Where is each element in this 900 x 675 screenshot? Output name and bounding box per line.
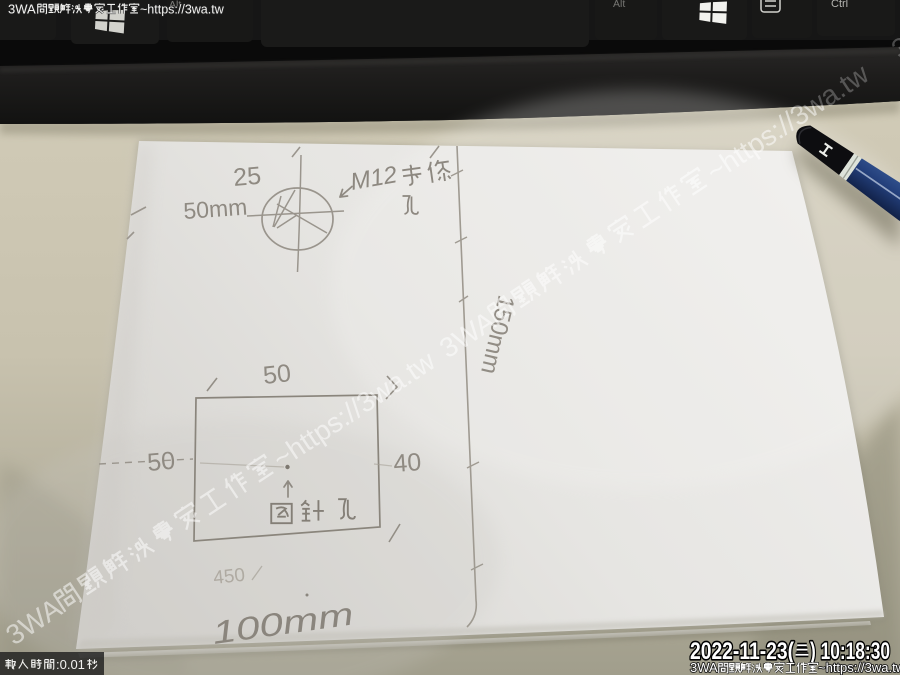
svg-text::0.01: :0.01: [56, 657, 85, 672]
svg-text:50: 50: [146, 447, 176, 477]
svg-text:450: 450: [212, 565, 246, 589]
svg-text:3WA: 3WA: [8, 2, 36, 17]
svg-text:50: 50: [262, 359, 293, 390]
svg-text:3WA: 3WA: [690, 660, 718, 675]
svg-text:~https://3wa.tw: ~https://3wa.tw: [140, 3, 225, 17]
svg-text:25: 25: [232, 162, 262, 192]
svg-text:40: 40: [392, 448, 422, 478]
svg-text:Ctrl: Ctrl: [831, 0, 848, 10]
svg-text:Alt: Alt: [613, 0, 625, 10]
svg-text:~https://3wa.tw: ~https://3wa.tw: [818, 660, 900, 675]
svg-text:50mm: 50mm: [183, 194, 249, 224]
